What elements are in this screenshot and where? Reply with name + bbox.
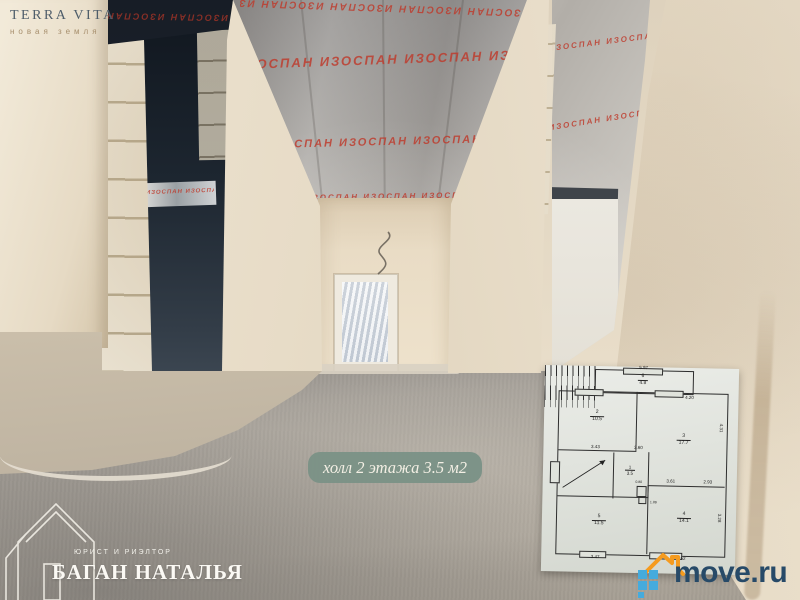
stairwell-window xyxy=(334,274,398,372)
plan-room-label: 317.7 xyxy=(670,434,698,447)
plan-dimension: 3.28 xyxy=(717,514,722,523)
foil-seam xyxy=(436,0,463,211)
dirt-streak xyxy=(744,290,776,600)
izospan-print: ИЗОСПАН ИЗОСПАН ИЗОСПАН ИЗОСПАН ИЗОСПАН … xyxy=(146,188,214,196)
plan-dimension: 0.80 xyxy=(631,480,647,484)
moveru-wordmark: move.ru xyxy=(674,556,787,590)
izospan-print: ИЗОСПАН ИЗОСПАН ИЗОСПАН ИЗОСПАН ИЗОСПАН … xyxy=(240,0,530,18)
plan-dimension: 2.93 xyxy=(695,479,721,485)
terra-vita-title: TERRA VITA xyxy=(10,8,116,24)
izospan-print: ИЗОСПАН ИЗОСПАН ИЗОСПАН ИЗОСПАН ИЗОСПАН … xyxy=(235,47,535,72)
plan-room-label: 13.5 xyxy=(618,465,642,477)
terra-vita-logo: TERRA VITA новая земля xyxy=(10,8,116,36)
foil-strip: ИЗОСПАН ИЗОСПАН ИЗОСПАН ИЗОСПАН ИЗОСПАН … xyxy=(144,181,217,207)
plan-dimension: 3.43 xyxy=(581,444,609,450)
stairs-arrow-icon xyxy=(558,451,612,494)
hanging-wire xyxy=(366,230,396,276)
plan-dimension: 3.47 xyxy=(581,554,609,560)
plan-room-label: 414.1 xyxy=(670,512,698,525)
plan-room-label: 210.5 xyxy=(583,410,611,423)
izospan-print: ИЗОСПАН ИЗОСПАН ИЗОСПАН ИЗОСПАН ИЗОСПАН … xyxy=(265,133,505,151)
realtor-role: ЮРИСТ И РИЭЛТОР xyxy=(74,549,172,556)
izospan-print: ИЗОСПАН ИЗОСПАН ИЗОСПАН ИЗОСПАН ИЗОСПАН … xyxy=(548,109,643,133)
plan-dimension: 3.61 xyxy=(658,478,684,484)
foil-seam xyxy=(382,0,385,212)
slab-edge xyxy=(312,364,460,374)
plan-dimension: 3.60 xyxy=(625,445,651,451)
izospan-print: ИЗОСПАН ИЗОСПАН ИЗОСПАН ИЗОСПАН ИЗОСПАН … xyxy=(548,32,648,53)
plan-window xyxy=(575,389,604,396)
plan-dimension: 4.31 xyxy=(719,424,724,433)
izospan-print: ИЗОСПАН ИЗОСПАН ИЗОСПАН ИЗОСПАН ИЗОСПАН … xyxy=(108,11,228,23)
plan-dimension: 4.20 xyxy=(674,395,704,401)
plan-room-label: 64.8 xyxy=(629,374,657,387)
frosted-glass xyxy=(342,282,388,362)
plan-room-label: 511.5 xyxy=(585,514,613,527)
caption-text: холл 2 этажа 3.5 м2 xyxy=(323,458,467,478)
terra-vita-subtitle: новая земля xyxy=(10,27,116,36)
realtor-name: БАГАН НАТАЛЬЯ xyxy=(52,560,243,585)
plan-dimension: 1.89 xyxy=(645,500,661,504)
caption-badge: холл 2 этажа 3.5 м2 xyxy=(308,452,482,483)
moveru-squares-icon xyxy=(638,570,664,594)
floor-plan-overlay: 64.8 210.5 317.7 13.5 511.5 414.1 5.97 4… xyxy=(541,365,739,575)
left-wall xyxy=(0,0,108,348)
listing-photo: ИЗОСПАН ИЗОСПАН ИЗОСПАН ИЗОСПАН ИЗОСПАН … xyxy=(0,0,800,600)
